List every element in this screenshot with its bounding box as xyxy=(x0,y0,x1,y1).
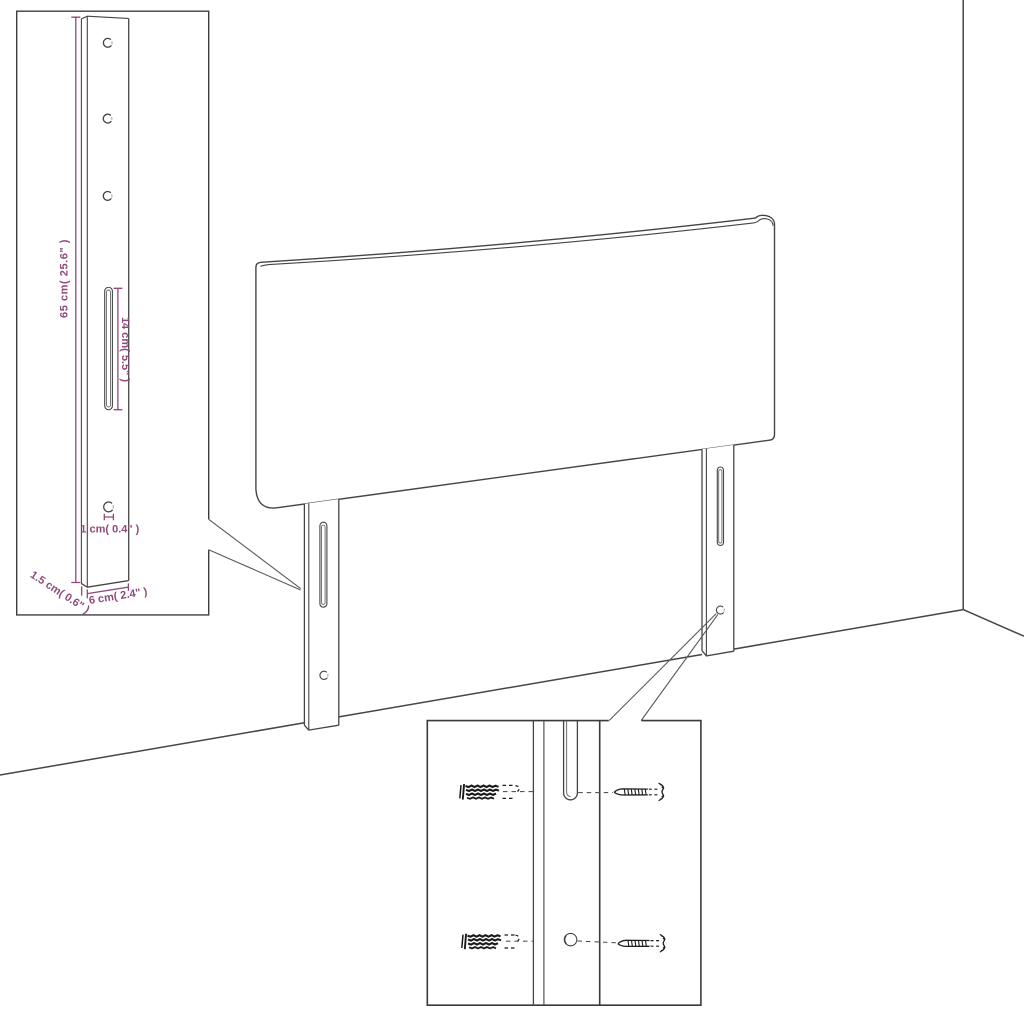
svg-text:65 cm( 25.6" ): 65 cm( 25.6" ) xyxy=(59,239,71,318)
svg-text:14 cm( 5.5" ): 14 cm( 5.5" ) xyxy=(119,317,131,382)
svg-text:1 cm( 0.4" ): 1 cm( 0.4" ) xyxy=(80,524,139,536)
